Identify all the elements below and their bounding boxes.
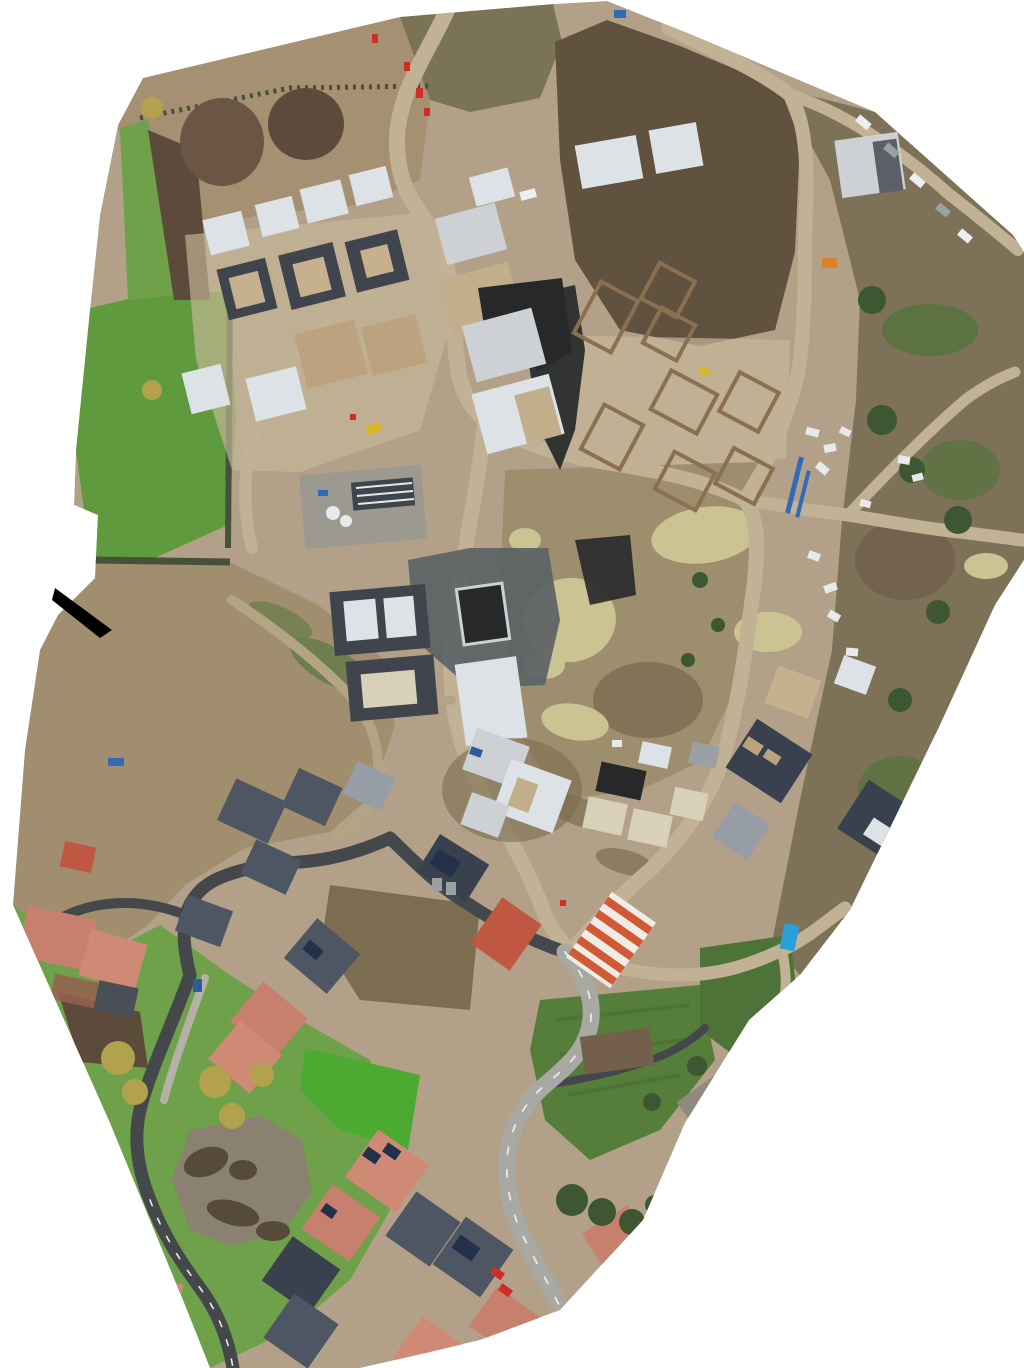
tree — [926, 600, 950, 624]
barrier — [372, 34, 378, 43]
autumn-tree — [101, 1041, 135, 1075]
pipe-bundle — [318, 490, 328, 496]
tree — [643, 1093, 661, 1111]
stack — [846, 647, 859, 656]
barrier — [118, 26, 127, 33]
barrier — [350, 414, 356, 420]
tree — [888, 688, 912, 712]
welfare-unit — [432, 878, 442, 891]
autumn-tree — [142, 380, 162, 400]
barrier — [130, 40, 138, 46]
autumn-tree — [219, 1103, 245, 1129]
autumn-tree — [199, 1066, 231, 1098]
tree — [645, 1195, 665, 1215]
tree — [687, 1056, 707, 1076]
pipe-bundle — [108, 758, 124, 766]
right-band-green-2 — [920, 440, 1000, 500]
mud-patch — [593, 662, 703, 738]
pad-north-slab-1 — [343, 599, 378, 642]
tree — [858, 286, 886, 314]
tree — [556, 1184, 588, 1216]
barrier — [416, 88, 423, 98]
autumn-tree — [122, 1079, 148, 1105]
bush — [711, 618, 725, 632]
storage-tank-1 — [326, 506, 340, 520]
tree — [867, 405, 897, 435]
autumn-tree — [250, 1063, 274, 1087]
yellow-machine — [700, 368, 710, 376]
white-building-east — [649, 122, 704, 174]
dark-pad-north — [329, 584, 430, 656]
house-salmon-roof — [131, 1276, 184, 1325]
puddle-right-edge — [964, 553, 1008, 579]
orthomosaic-aerial-photo — [0, 0, 1024, 1368]
mosaic-content — [13, 1, 1024, 1368]
blue-car — [193, 979, 202, 992]
bush — [681, 653, 695, 667]
pipe-bundle — [614, 10, 626, 18]
welfare-unit — [446, 882, 456, 895]
tree — [619, 1209, 645, 1235]
tree — [944, 506, 972, 534]
white-roof-building — [455, 656, 528, 746]
soil-mound-west — [180, 98, 264, 186]
house-salmon-edge — [988, 908, 1024, 940]
bush — [692, 572, 708, 588]
pad-north-slab-2 — [383, 596, 416, 638]
pad-south-slab — [361, 670, 418, 709]
screenshot-canvas — [0, 0, 1024, 1368]
hedgerow-field-south — [90, 560, 230, 562]
right-band-green-1 — [882, 304, 978, 356]
barrier — [362, 12, 368, 21]
soil-mound-east — [268, 88, 344, 160]
barrier — [424, 108, 430, 116]
barrier — [560, 900, 566, 906]
autumn-tree — [141, 97, 163, 119]
storage-tank-2 — [340, 515, 352, 527]
pond-reeds-3 — [256, 1221, 290, 1241]
tree — [588, 1198, 616, 1226]
orange-digger — [822, 258, 837, 268]
barrier — [404, 62, 410, 71]
red-car — [189, 1345, 204, 1358]
stack — [612, 740, 622, 747]
pond-island — [229, 1160, 257, 1180]
